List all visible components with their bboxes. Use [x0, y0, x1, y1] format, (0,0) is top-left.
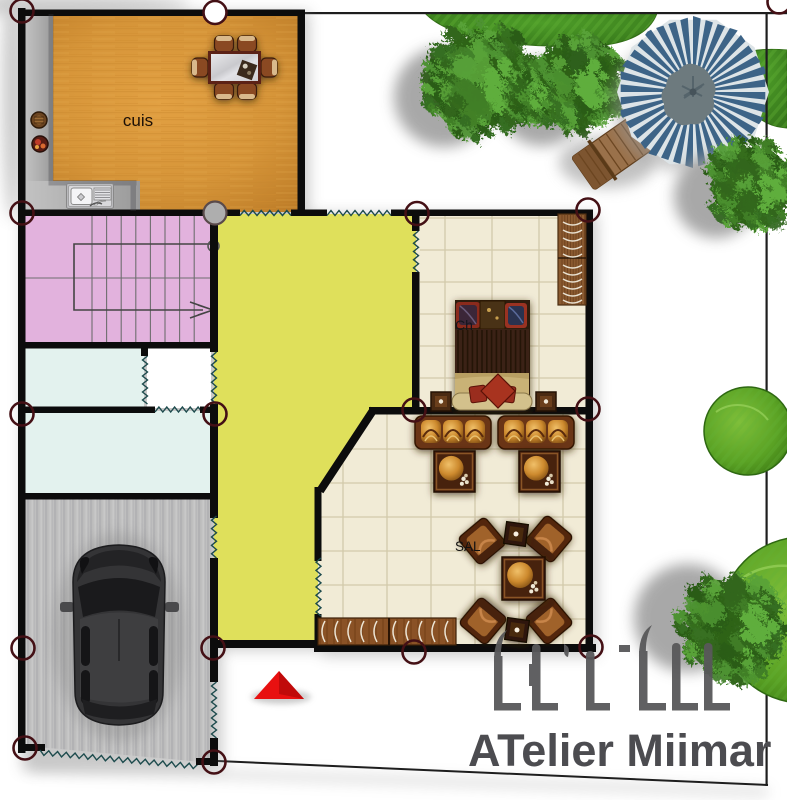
svg-text:cuis: cuis [123, 111, 153, 130]
svg-text:SAL: SAL [455, 539, 481, 554]
svg-text:ATelier Miimar: ATelier Miimar [468, 725, 771, 776]
svg-text:Ch: Ch [455, 317, 473, 333]
